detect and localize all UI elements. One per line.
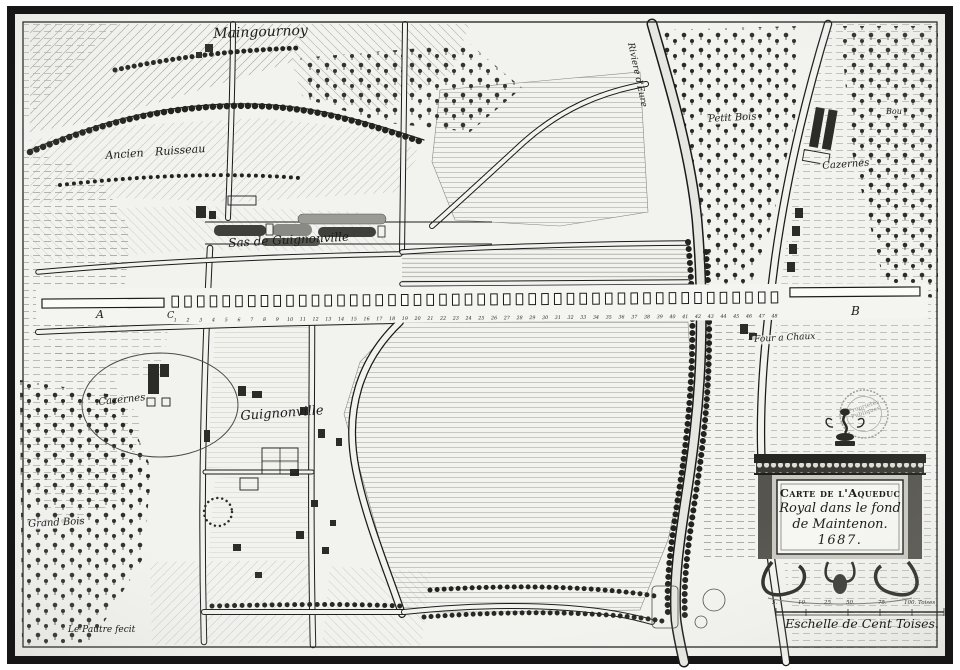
cartouche-line3: de Maintenon. xyxy=(792,517,887,532)
scale-tick-25: 25. xyxy=(824,601,833,607)
map-scan: 1234567891011121314151617181920212223242… xyxy=(0,0,960,670)
scale-caption: Eschelle de Cent Toises. xyxy=(780,618,944,631)
label-aqueduct-b: B xyxy=(851,305,860,317)
scale-tick-5: 5. xyxy=(772,601,777,607)
label-maingournoy: Maingournoy xyxy=(213,24,308,41)
cartouche-line1: Carte de l'Aqueduc xyxy=(780,486,901,500)
scale-tick-10: 10. xyxy=(798,601,807,607)
label-aqueduct-a: A xyxy=(96,309,104,320)
label-bou: Bou xyxy=(884,108,904,116)
scale-tick-50: 50. xyxy=(846,601,855,607)
scale-tick-100: 100. Toises xyxy=(904,601,935,607)
scale-tick-75: 75. xyxy=(878,601,887,607)
cartouche-line4: 1687. xyxy=(818,533,863,548)
label-aqueduct-c: C xyxy=(167,311,174,321)
label-signature: Le Pautre fecit xyxy=(68,626,135,635)
cartouche-line2: Royal dans le fond xyxy=(779,501,901,516)
cartouche: Carte de l'Aqueduc Royal dans le fond de… xyxy=(777,480,903,554)
